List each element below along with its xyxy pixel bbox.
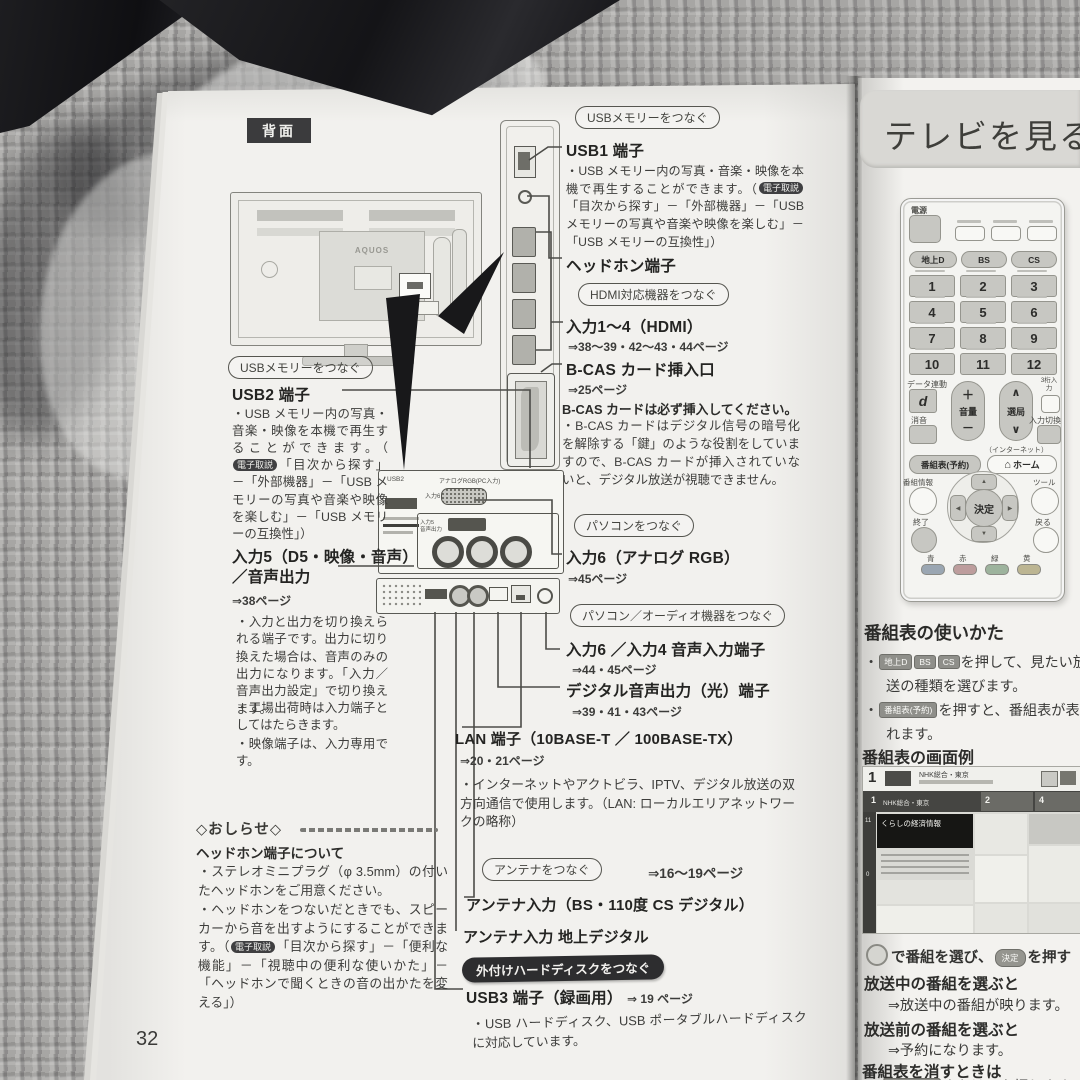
hdmi-pages: ⇒38～39・42～43・44ページ <box>568 338 729 355</box>
color-button-red <box>953 564 977 575</box>
small-button-label-mark <box>957 220 981 223</box>
book-spine-gap <box>846 76 862 1080</box>
e-manual-badge: 電子取説 <box>759 182 803 194</box>
lan-title: LAN 端子（10BASE-T ／ 100BASE-TX） <box>455 728 743 749</box>
epg-screenshot: 1 NHK総合・東京 1 NHK総合・東京 2 4 11 0 くらしの経済情報 <box>862 766 1080 934</box>
panel-av-box: 入力5音声出力 <box>417 513 559 569</box>
kana-mark <box>966 296 996 298</box>
epg-highlight-text: くらしの経済情報 <box>881 818 941 829</box>
chapter-title: テレビを見る <box>884 110 1080 158</box>
tv-connector-area-highlight <box>399 273 431 299</box>
photo-scene: 背面 AQUOS <box>0 0 1080 1080</box>
home-button: ⌂ ホーム <box>987 455 1057 474</box>
hdmi-port-icon <box>512 335 536 365</box>
hdmi-title: 入力1～4（HDMI） <box>566 315 703 337</box>
epg-channel-logo <box>885 771 911 786</box>
tools-button <box>1031 487 1059 515</box>
erase-line: ・番組表(予約)または終了を押します。 <box>868 1076 1080 1080</box>
number-button-3: 3 <box>1011 275 1057 297</box>
callout-pc: パソコンをつなぐ <box>574 514 694 537</box>
usb3-title: USB3 端子（録画用） <box>466 990 623 1007</box>
chapter-tab: テレビを見る <box>860 90 1080 168</box>
usb2-note: ・USB メモリー内の写真・音楽・映像を本機で再生することができます。（電子取説… <box>232 406 388 543</box>
tv-terminal-strip <box>393 301 439 315</box>
epg-grid-station: NHK総合・東京 <box>883 797 929 807</box>
callout-usb-memory-right: USBメモリーをつなぐ <box>575 106 720 129</box>
guide-howto-title: 番組表の使いかた <box>864 620 1004 645</box>
callout-hdmi: HDMI対応機器をつなぐ <box>578 283 729 306</box>
dpad-icon <box>866 944 888 966</box>
epg-time-tick: 11 <box>865 818 871 824</box>
epg-grid-ch3: 4 <box>1039 795 1044 805</box>
page-number: 32 <box>136 1028 158 1051</box>
program-info-button <box>909 487 937 515</box>
bcas-warning-note: ・B-CAS カードはデジタル信号の暗号化を解除する「鍵」のような役割をしていま… <box>562 418 800 490</box>
bullet: ・ <box>864 703 878 719</box>
input6-audio-title: 入力6 ／入力4 音声入力端子 <box>566 638 765 660</box>
input6-rgb-pages: ⇒45ページ <box>568 570 627 587</box>
number-button-12: 12 <box>1011 353 1057 375</box>
antenna-bs-title: アンテナ入力（BS・110度 CS デジタル） <box>466 894 754 915</box>
onair-result: ⇒放送中の番組が映ります。 <box>888 995 1069 1015</box>
panel-usb2-port <box>385 498 417 509</box>
lan-note: ・インターネットやアクトビラ、IPTV、デジタル放送の双方向通信で使用します。（… <box>460 776 795 832</box>
d-button: d <box>909 389 937 413</box>
kana-mark <box>915 348 945 350</box>
epg-time-bar <box>919 780 993 784</box>
number-button-11: 11 <box>960 353 1006 375</box>
strip-audio-jack <box>537 588 553 604</box>
tv-speaker-strip <box>369 210 455 221</box>
headphone-title: ヘッドホン端子 <box>566 254 676 276</box>
epg-select-line: で番組を選び、決定を押す <box>866 944 1071 967</box>
side-terminal-strip <box>500 120 560 470</box>
number-button-1: 1 <box>909 275 955 297</box>
headphone-jack-icon <box>518 190 532 204</box>
epg-grid-ch1: 1 <box>871 795 876 805</box>
e-manual-badge: 電子取説 <box>233 459 277 471</box>
input5-note2: ・工場出荷時は入力端子としてはたらきます。 <box>236 700 388 735</box>
input6-audio-pages: ⇒44・45ページ <box>572 661 657 678</box>
channel-down: ∨ <box>1012 423 1021 436</box>
kana-mark <box>1017 270 1047 272</box>
kana-mark <box>966 270 996 272</box>
internet-label: （インターネット） <box>985 445 1048 455</box>
epg-grid-cell: 2 <box>981 792 1033 811</box>
strip-antenna-f-connector <box>467 585 489 607</box>
tv-rear-illustration: AQUOS <box>230 192 482 346</box>
notice-title: ◇おしらせ◇ <box>196 818 282 839</box>
notice-item-1: ・ステレオミニプラグ（φ 3.5mm）の付いたヘッドホンをご用意ください。 <box>198 863 448 900</box>
chip-epg: 番組表(予約) <box>879 702 937 718</box>
epg-station-name: NHK総合・東京 <box>919 770 969 780</box>
bcas-card-icon <box>521 387 539 451</box>
channel-rocker: ∧ 選局 ∨ <box>999 381 1033 441</box>
epg-highlighted-cell: くらしの経済情報 <box>877 814 973 848</box>
kana-mark <box>1017 322 1047 324</box>
usb1-port-icon <box>514 146 536 178</box>
tv-brand-logo: AQUOS <box>320 246 424 255</box>
guide-step1-text: を押して、見たい放 <box>961 655 1080 671</box>
small-button-label-mark <box>993 220 1017 223</box>
tv-side-cover <box>452 229 467 323</box>
channel-label: 選局 <box>1007 405 1025 418</box>
kana-mark <box>966 348 996 350</box>
kana-mark <box>1017 348 1047 350</box>
antenna-ground-title: アンテナ入力 地上デジタル <box>463 926 649 947</box>
hdmi-port-icon <box>512 263 536 293</box>
volume-down: － <box>962 419 974 436</box>
epg-time-tick: 0 <box>866 872 869 878</box>
small-button <box>1027 226 1057 241</box>
epg-cell <box>975 856 1027 902</box>
home-icon: ⌂ <box>1004 459 1011 471</box>
exit-button <box>911 527 937 553</box>
epg-cell <box>877 850 973 878</box>
panel-rca-jack <box>466 536 498 568</box>
channel-up: ∧ <box>1012 386 1021 399</box>
bcas-pages: ⇒25ページ <box>568 381 627 398</box>
chip-bs: BS <box>914 655 935 669</box>
panel-dterminal <box>448 518 486 531</box>
epg-icon <box>1041 771 1058 787</box>
epg-icon <box>1060 771 1076 785</box>
number-button-5: 5 <box>960 301 1006 323</box>
small-button-label-mark <box>1029 220 1053 223</box>
digital-audio-title: デジタル音声出力（光）端子 <box>566 679 770 701</box>
epg-cell <box>1029 904 1080 933</box>
panel-in6-label: 入力6 <box>425 491 440 500</box>
epg-time-column: 11 0 <box>863 812 876 933</box>
callout-usb-memory-left: USBメモリーをつなぐ <box>228 356 373 379</box>
back-button <box>1033 527 1059 553</box>
select-text-end: を押す <box>1028 950 1072 966</box>
input5-note3: ・映像端子は、入力専用です。 <box>236 736 388 771</box>
kana-mark <box>915 322 945 324</box>
hdmi-port-icon <box>512 299 536 329</box>
bcas-warning-title: B-CAS カードは必ず挿入してください。 <box>562 399 797 418</box>
color-button-yellow <box>1017 564 1041 575</box>
input5-pages: ⇒38ページ <box>232 592 291 609</box>
panel-caption-bar <box>383 517 419 520</box>
bullet: ・ <box>864 655 878 671</box>
panel-usb2-label: USB2 <box>387 476 404 483</box>
chip-chijo-d: 地上D <box>879 654 912 670</box>
epg-cell <box>877 906 973 933</box>
number-button-2: 2 <box>960 275 1006 297</box>
mute-button <box>909 425 937 444</box>
before-result: ⇒予約になります。 <box>888 1040 1012 1060</box>
strip-lan-tab <box>516 595 525 600</box>
epg-grid-ch2: 2 <box>985 795 990 805</box>
small-button <box>991 226 1021 241</box>
epg-header-row: 1 NHK総合・東京 2 4 <box>863 791 1080 812</box>
usb3-pages: ⇒ 19 ページ <box>627 992 693 1006</box>
callout-antenna: アンテナをつなぐ <box>482 858 602 881</box>
enter-chip: 決定 <box>995 949 1026 967</box>
epg-channel-number: 1 <box>868 769 876 786</box>
enter-button: 決定 <box>965 489 1003 527</box>
epg-cell <box>975 814 1027 854</box>
number-button-9: 9 <box>1011 327 1057 349</box>
tv-screw-hole <box>261 261 278 278</box>
bcas-slot-icon <box>507 373 555 467</box>
bcas-slot-opening <box>515 381 547 459</box>
home-label: ホーム <box>1013 458 1040 471</box>
antenna-pages: ⇒16～19ページ <box>648 862 743 882</box>
guide-step1-line2: 送の種類を選びます。 <box>886 676 1026 696</box>
hdmi-port-icon <box>512 227 536 257</box>
epg-top-bar: 1 NHK総合・東京 <box>863 767 1080 791</box>
input5-title: 入力5（D5・映像・音声）／音声出力 <box>232 548 412 588</box>
small-button <box>955 226 985 241</box>
kana-mark <box>1017 296 1047 298</box>
epg-cell <box>877 880 973 904</box>
band-button-chijo-d: 地上D <box>909 251 957 268</box>
number-button-4: 4 <box>909 301 955 323</box>
usb1-title: USB1 端子 <box>566 139 644 161</box>
volume-rocker: ＋ 音量 － <box>951 381 985 441</box>
usb3-line: USB3 端子（録画用） ⇒ 19 ページ <box>466 986 693 1008</box>
dpad-up: ▲ <box>971 474 997 490</box>
program-info-label: 番組情報 <box>903 477 933 488</box>
epg-cell <box>1029 814 1080 844</box>
number-button-10: 10 <box>909 353 955 375</box>
chip-cs: CS <box>938 655 960 669</box>
kana-mark <box>966 322 996 324</box>
guide-step2-line1: ・番組表(予約)を押すと、番組表が表示さ <box>864 700 1080 720</box>
panel-caption-bar <box>383 524 419 527</box>
tv-label-plate <box>354 266 392 290</box>
guide-step1-line1: ・地上DBSCSを押して、見たい放 <box>864 652 1080 672</box>
kana-mark <box>915 270 945 272</box>
before-title: 放送前の番組を選ぶと <box>864 1018 1019 1040</box>
digital-audio-pages: ⇒39・41・43ページ <box>572 703 682 720</box>
callout-pc-audio: パソコン／オーディオ機器をつなぐ <box>570 604 785 627</box>
strip-optical-port <box>489 587 508 601</box>
number-button-6: 6 <box>1011 301 1057 323</box>
power-button <box>909 215 941 243</box>
lan-pages: ⇒20・21ページ <box>460 752 545 769</box>
color-button-blue <box>921 564 945 575</box>
usb2-note-text: ・USB メモリー内の写真・音楽・映像を本機で再生することができます。（ <box>232 407 388 455</box>
dpad-left: ◀ <box>950 495 966 521</box>
notice-wavy-line <box>300 828 438 832</box>
remote-control-illustration: 電源 地上D BS CS 1 2 3 4 5 6 7 8 9 10 11 12 <box>900 198 1065 602</box>
epg-grid-cell: 4 <box>1035 792 1080 811</box>
panel-rgb-label: アナログRGB(PC入力) <box>439 476 500 485</box>
color-label-blue: 青 <box>927 553 935 564</box>
notice-subtitle: ヘッドホン端子について <box>196 842 344 862</box>
guide-step2-line2: れます。 <box>886 724 941 744</box>
input6-rgb-title: 入力6（アナログ RGB） <box>566 546 740 568</box>
color-label-yellow: 黄 <box>1023 553 1031 564</box>
epg-button: 番組表(予約) <box>909 455 981 474</box>
guide-step2-text: を押すと、番組表が表示さ <box>938 703 1080 719</box>
usb2-title: USB2 端子 <box>232 383 310 405</box>
bcas-title: B-CAS カード挿入口 <box>566 358 715 380</box>
number-button-7: 7 <box>909 327 955 349</box>
volume-up: ＋ <box>962 386 974 403</box>
usb1-note: ・USB メモリー内の写真・音楽・映像を本機で再生することができます。（電子取説… <box>566 163 804 251</box>
digit3-button <box>1041 395 1060 413</box>
usb1-note-text2: 「目次から探す」－「外部機器」－「USB メモリーの写真や音楽や映像を楽しむ」－… <box>566 199 804 248</box>
back-section-label: 背面 <box>247 118 311 143</box>
color-button-green <box>985 564 1009 575</box>
panel-rca-jack <box>432 536 464 568</box>
number-button-8: 8 <box>960 327 1006 349</box>
panel-rca-jack <box>500 536 532 568</box>
band-button-cs: CS <box>1011 251 1057 268</box>
input-switch-button <box>1037 425 1061 444</box>
select-text: で番組を選び、 <box>891 950 993 966</box>
kana-mark <box>915 296 945 298</box>
volume-label: 音量 <box>959 405 977 418</box>
epg-cell <box>1029 846 1080 902</box>
band-button-bs: BS <box>961 251 1007 268</box>
panel-vga-connector <box>441 488 487 505</box>
dpad-right: ▶ <box>1002 495 1018 521</box>
onair-title: 放送中の番組を選ぶと <box>864 972 1019 994</box>
epg-cell <box>975 904 1027 933</box>
usb3-note: ・USB ハードディスク、USB ポータブルハードディスクに対応しています。 <box>472 1008 808 1052</box>
e-manual-badge: 電子取説 <box>231 941 275 953</box>
panel-in5-label: 入力5音声出力 <box>420 520 442 533</box>
dpad-down: ▼ <box>971 526 997 542</box>
usb1-port-inner <box>518 152 530 170</box>
strip-lan-port <box>511 585 531 603</box>
dpad: ▲ ▼ ◀ ▶ 決定 <box>947 471 1019 543</box>
color-label-green: 緑 <box>991 553 999 564</box>
notice-item-2: ・ヘッドホンをつないだときでも、スピーカーから音を出すようにすることができます。… <box>198 901 448 1012</box>
color-label-red: 赤 <box>959 553 967 564</box>
callout-external-hdd: 外付けハードディスクをつなぐ <box>462 954 665 983</box>
digit3-label: 3桁入力 <box>1038 377 1060 393</box>
tv-connector-mark <box>407 282 423 289</box>
tv-speaker-strip <box>257 210 343 221</box>
strip-usb3-port <box>425 589 447 599</box>
epg-example-title: 番組表の画面例 <box>862 744 974 768</box>
